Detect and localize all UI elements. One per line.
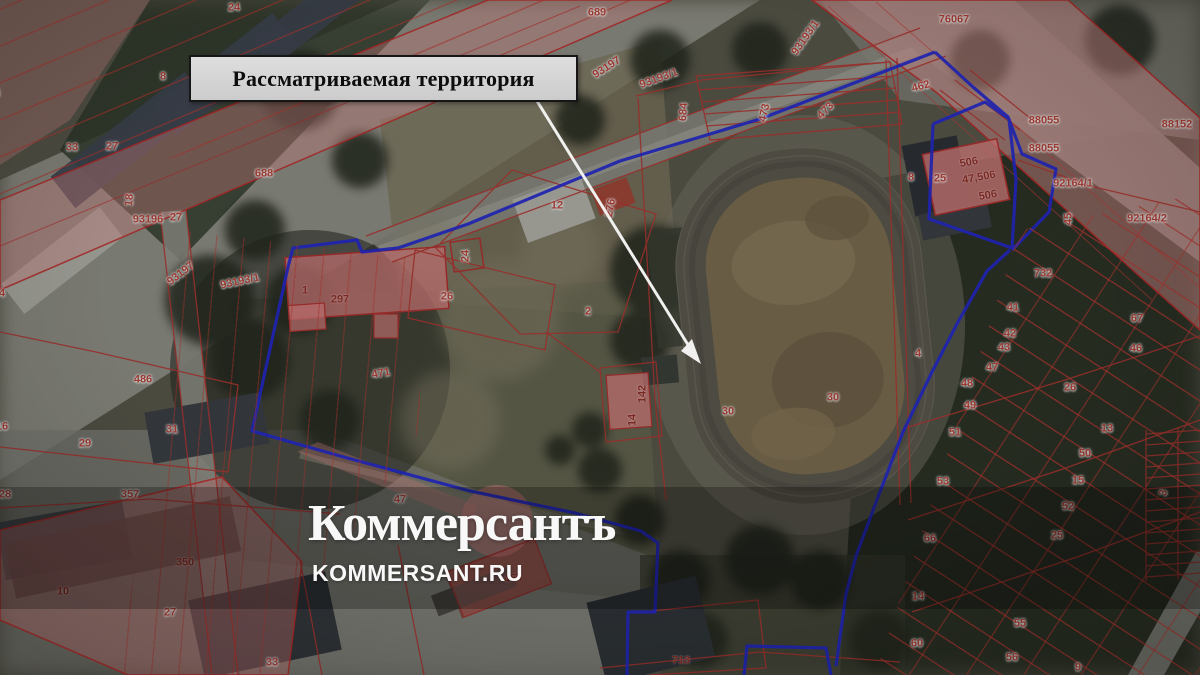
garage-hatch: [1146, 428, 1200, 581]
kommersant-site-url: KOMMERSANT.RU: [312, 560, 523, 587]
stadium: [664, 136, 946, 516]
map-canvas: 246897606793193/19319793193/186844734734…: [0, 0, 1200, 675]
territory-label-box: Рассматриваемая территория: [189, 55, 578, 102]
territory-label-text: Рассматриваемая территория: [232, 66, 534, 92]
satellite-scene-svg: [0, 0, 1200, 675]
kommersant-logo: Коммерсантъ: [308, 494, 616, 553]
